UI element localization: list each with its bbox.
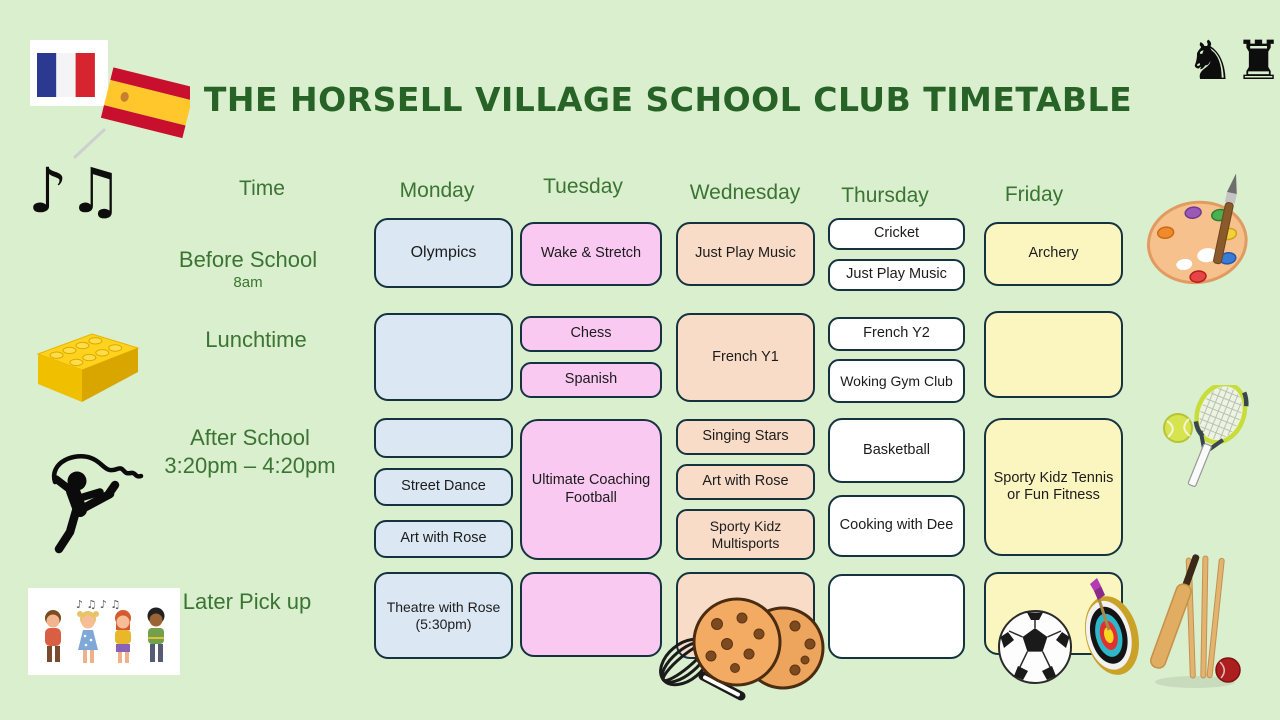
cell-before-school-friday: Archery [984,222,1123,286]
chess-pieces-icon: ♞♜ [1186,34,1280,88]
cell-after-school-tuesday: Ultimate Coaching Football [520,419,662,560]
music-notes-icon: ♪♫ [28,160,123,222]
cell-after-school-thursday-2: Cooking with Dee [828,495,965,557]
cell-later-pickup-monday: Theatre with Rose (5:30pm) [374,572,513,659]
cookies-and-whisk-icon [645,582,830,710]
row-label-lunchtime: Lunchtime [156,326,356,354]
timetable-poster: THE HORSELL VILLAGE SCHOOL CLUB TIMETABL… [0,0,1280,720]
cell-before-school-wednesday: Just Play Music [676,222,815,286]
lego-brick-icon [30,326,145,406]
ribbon-dancer-icon [25,448,145,558]
cell-before-school-monday: Olympics [374,218,513,288]
cricket-set-icon [1140,550,1260,695]
cell-before-school-thursday-1: Cricket [828,218,965,250]
row-sublabel-before-school-time: 8am [148,274,348,292]
column-header-wednesday: Wednesday [670,181,820,205]
svg-text:♪ ♫ ♪ ♫: ♪ ♫ ♪ ♫ [76,598,120,611]
cell-after-school-wednesday-2: Art with Rose [676,464,815,500]
cell-lunchtime-friday-empty [984,311,1123,398]
column-header-time: Time [187,177,337,201]
row-sublabel-after-school-time: 3:20pm – 4:20pm [130,452,370,480]
cell-later-pickup-thursday-empty [828,574,965,659]
cell-after-school-thursday-1: Basketball [828,418,965,483]
cell-lunchtime-thursday-1: French Y2 [828,317,965,351]
column-header-monday: Monday [362,179,512,203]
cell-lunchtime-tuesday-1: Chess [520,316,662,352]
soccer-ball-icon [995,607,1075,687]
paint-palette-icon [1145,170,1265,290]
archery-target-icon [1072,578,1150,688]
column-header-tuesday: Tuesday [508,175,658,199]
row-label-after-school: After School [130,424,370,452]
cell-lunchtime-tuesday-2: Spanish [520,362,662,398]
cell-after-school-monday-3: Art with Rose [374,520,513,558]
column-header-friday: Friday [959,183,1109,207]
page-title: THE HORSELL VILLAGE SCHOOL CLUB TIMETABL… [168,80,1168,119]
cell-after-school-monday-2: Street Dance [374,468,513,506]
cell-lunchtime-monday-empty [374,313,513,401]
row-label-later-pick-up: Later Pick up [182,588,312,616]
cell-lunchtime-wednesday: French Y1 [676,313,815,402]
column-header-thursday: Thursday [810,184,960,208]
cell-after-school-wednesday-1: Singing Stars [676,419,815,455]
row-label-before-school: Before School [148,246,348,274]
cell-after-school-monday-empty [374,418,513,458]
cell-later-pickup-tuesday-empty [520,572,662,657]
cell-before-school-tuesday: Wake & Stretch [520,222,662,286]
cell-after-school-friday: Sporty Kidz Tennis or Fun Fitness [984,418,1123,556]
cell-lunchtime-thursday-2: Woking Gym Club [828,359,965,403]
tennis-racket-and-ball-icon [1160,385,1275,510]
cell-after-school-wednesday-3: Sporty Kidz Multisports [676,509,815,560]
cell-before-school-thursday-2: Just Play Music [828,259,965,291]
french-and-spanish-flags-icon [20,30,190,160]
singing-kids-icon: ♪ ♫ ♪ ♫ [28,588,180,675]
